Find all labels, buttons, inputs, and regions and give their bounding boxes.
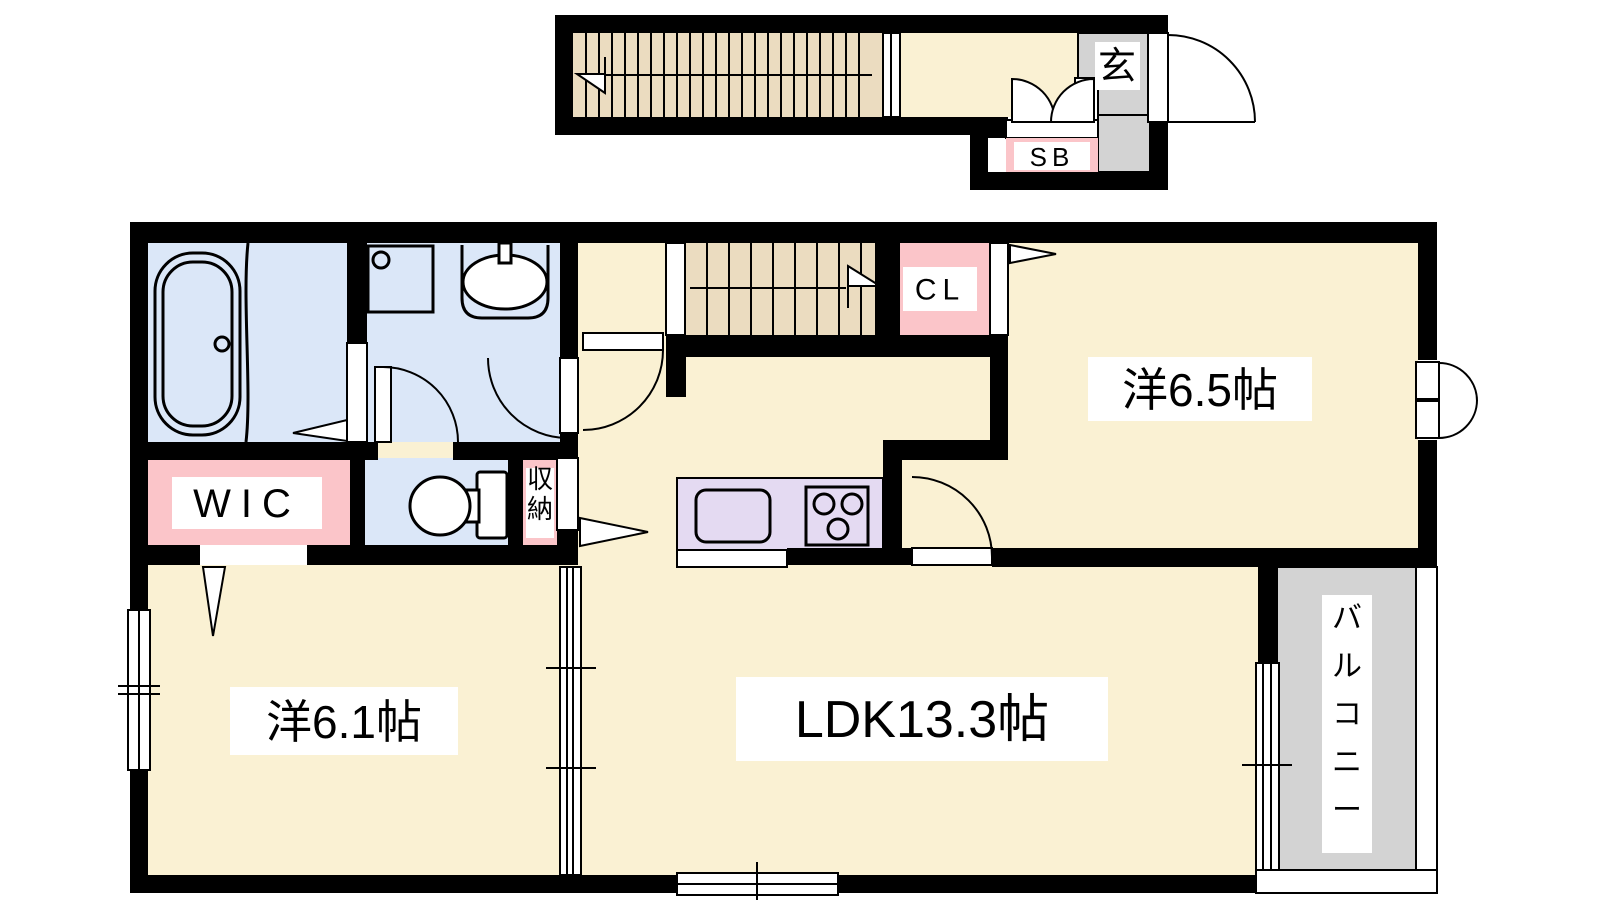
hall-door-leaf xyxy=(583,333,663,350)
genkan-floor-lower xyxy=(1098,115,1150,172)
room65-label: 洋6.5帖 xyxy=(1122,364,1278,416)
entrance-block: SB 玄 xyxy=(555,15,1255,190)
shoe-box-label: SB xyxy=(1030,142,1075,172)
ldk-label: LDK13.3帖 xyxy=(795,691,1049,749)
closet-label: CL xyxy=(915,274,965,307)
toilet-icon xyxy=(410,472,507,538)
floor-plan: SB 玄 xyxy=(0,0,1600,900)
stairs-down-opening xyxy=(666,243,685,335)
kitchen-counter-front xyxy=(677,550,787,567)
front-door-swing xyxy=(1168,35,1255,122)
closet-door-band xyxy=(990,243,1008,335)
storage-door-band xyxy=(557,458,578,530)
window-room65-right xyxy=(1416,362,1477,438)
toilet-door-leaf xyxy=(375,367,391,442)
room61-label: 洋6.1帖 xyxy=(266,696,422,748)
room65-door-leaf xyxy=(912,548,992,565)
wic-opening xyxy=(200,545,307,565)
washroom-door-leaf xyxy=(560,358,578,433)
kitchen-counter xyxy=(677,478,883,552)
entrance-label: 玄 xyxy=(1098,46,1136,88)
main-block: 洋6.5帖 洋6.1帖 LDK13.3帖 WIC CL 収納 バルコニー xyxy=(118,222,1477,900)
floor-plan-svg: SB 玄 xyxy=(0,0,1600,900)
front-door-leaf xyxy=(1148,33,1168,122)
storage-label: 収納 xyxy=(527,464,553,524)
balcony-parapet-bottom xyxy=(1256,870,1437,893)
wic-label: WIC xyxy=(193,482,301,526)
balcony-parapet-right xyxy=(1416,567,1437,893)
bath-door-opening xyxy=(347,343,367,442)
